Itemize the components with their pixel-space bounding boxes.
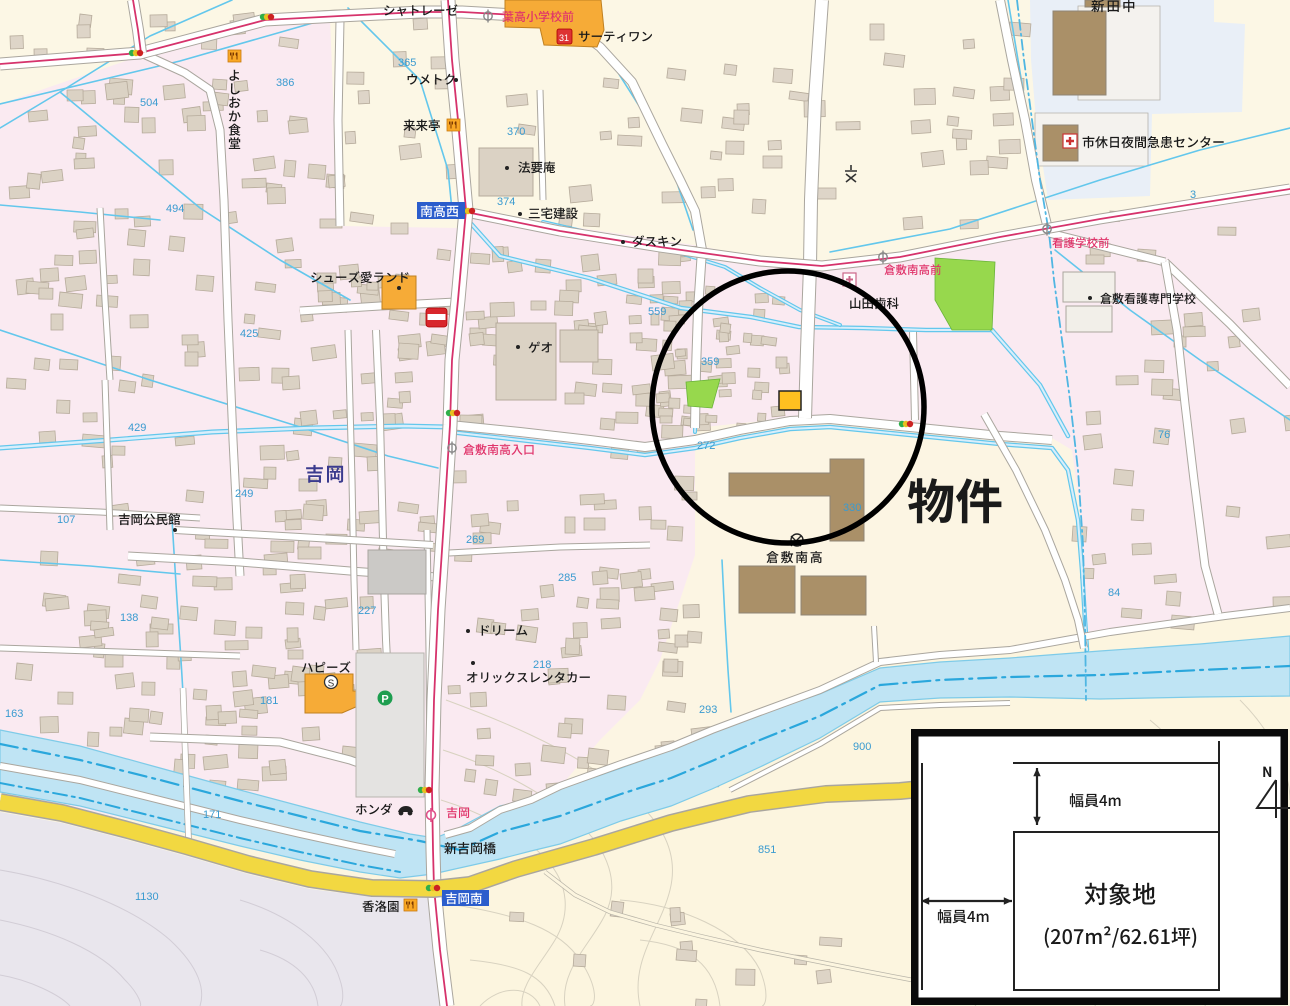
svg-text:429: 429 <box>128 422 146 434</box>
svg-text:269: 269 <box>466 534 484 546</box>
svg-text:293: 293 <box>699 704 717 716</box>
svg-text:171: 171 <box>203 809 221 821</box>
svg-text:76: 76 <box>1158 429 1170 441</box>
svg-text:272: 272 <box>697 440 715 452</box>
svg-text:425: 425 <box>240 328 258 340</box>
svg-text:31: 31 <box>559 33 569 43</box>
svg-text:559: 559 <box>648 306 666 318</box>
svg-text:227: 227 <box>358 605 376 617</box>
svg-text:504: 504 <box>140 97 158 109</box>
svg-text:138: 138 <box>120 612 138 624</box>
svg-text:359: 359 <box>701 356 719 368</box>
svg-text:249: 249 <box>235 488 253 500</box>
svg-text:370: 370 <box>507 126 525 138</box>
svg-text:285: 285 <box>558 572 576 584</box>
svg-text:900: 900 <box>853 741 871 753</box>
svg-text:3: 3 <box>1190 189 1196 201</box>
svg-text:218: 218 <box>533 659 551 671</box>
svg-text:163: 163 <box>5 708 23 720</box>
svg-text:374: 374 <box>497 196 515 208</box>
svg-text:386: 386 <box>276 77 294 89</box>
svg-text:330: 330 <box>843 502 861 514</box>
svg-text:P: P <box>381 694 388 706</box>
svg-text:1130: 1130 <box>135 891 159 903</box>
svg-text:851: 851 <box>758 844 776 856</box>
svg-text:84: 84 <box>1108 587 1120 599</box>
svg-text:494: 494 <box>166 203 184 215</box>
svg-text:107: 107 <box>57 514 75 526</box>
svg-text:S: S <box>328 679 335 690</box>
svg-text:181: 181 <box>260 695 278 707</box>
svg-text:365: 365 <box>398 57 416 69</box>
